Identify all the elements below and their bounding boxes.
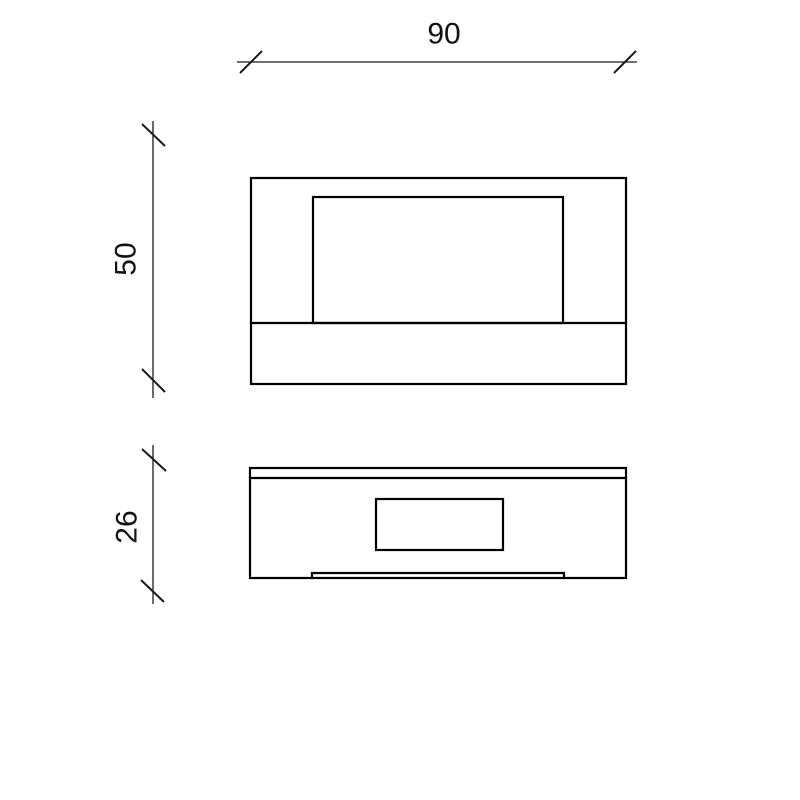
depth-dimension-tick-top [142,449,166,471]
front-view-outline [251,178,626,384]
height-dimension-label: 50 [110,242,143,275]
front-view [251,178,626,384]
bottom-view-outline [250,468,626,578]
front-view-inner-panel [313,197,563,323]
depth-dimension-label: 26 [111,510,144,543]
bottom-view-mounting-tab [312,573,564,577]
technical-drawing-page: 90 50 26 [0,0,800,800]
height-dimension: 50 [110,121,166,398]
bottom-view-center-cutout [376,499,503,550]
technical-drawing-svg: 90 50 26 [0,0,800,800]
bottom-view [250,468,626,578]
width-dimension-label: 90 [427,18,460,51]
depth-dimension: 26 [111,445,167,604]
width-dimension: 90 [237,18,637,74]
